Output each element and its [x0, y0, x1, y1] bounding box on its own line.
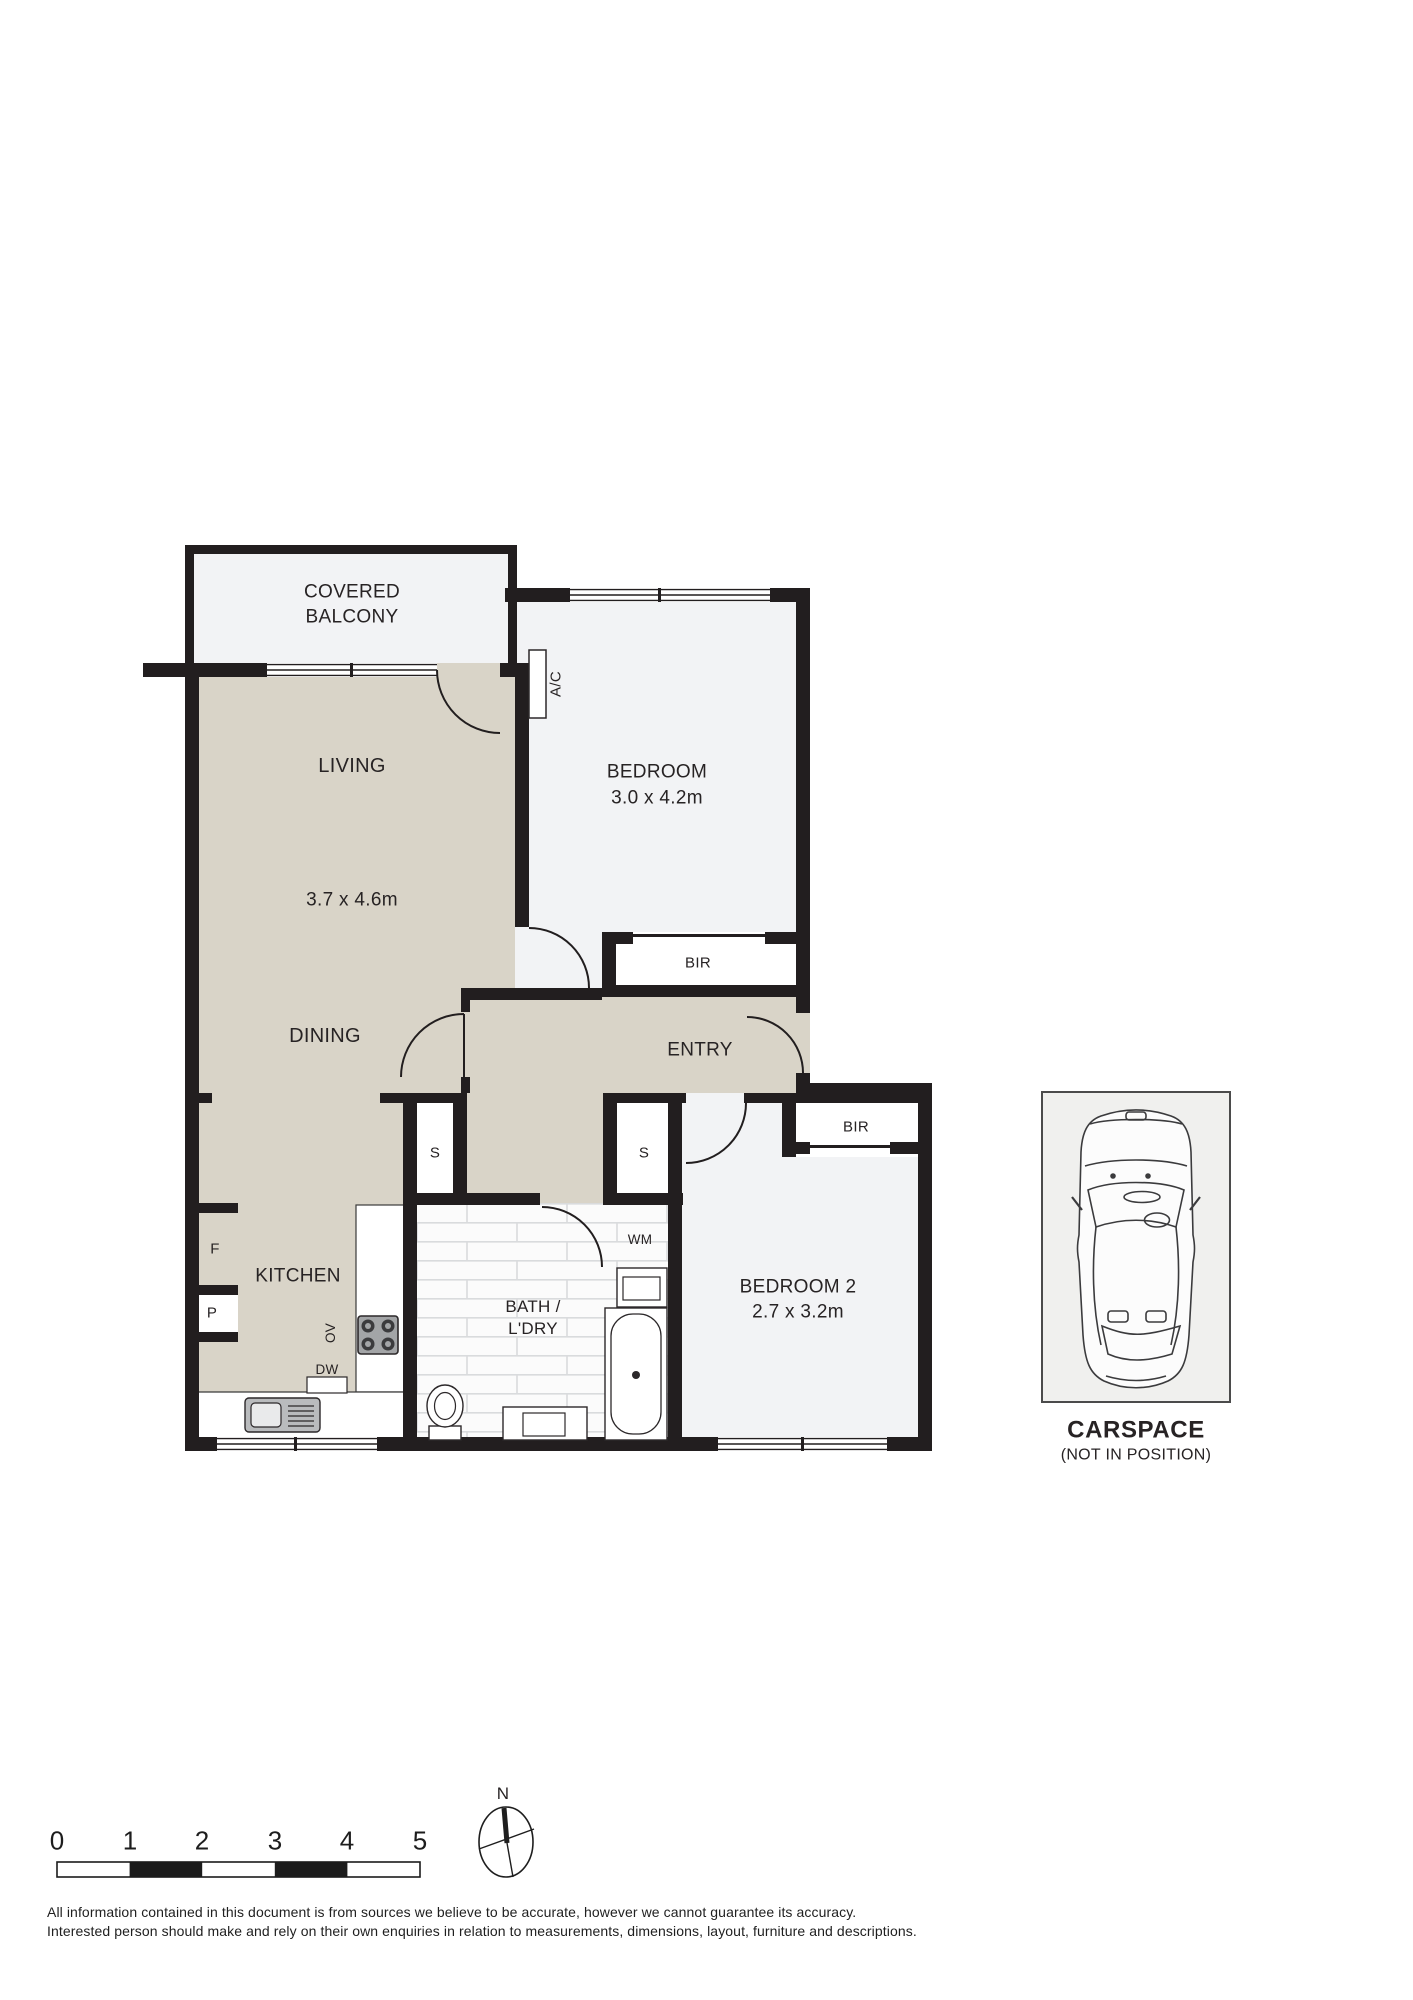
covered-balcony-line1: COVERED: [304, 580, 400, 605]
room-dimensions-living: 3.7 x 4.6m: [306, 889, 398, 914]
compass-icon: [479, 1807, 534, 1877]
dishwasher-label: DW: [315, 1361, 338, 1379]
scale-tick-0: 0: [50, 1826, 64, 1857]
compass-north-label: N: [497, 1783, 510, 1805]
room-dimensions-bedroom2: 2.7 x 3.2m: [752, 1301, 844, 1326]
sink-icon: [245, 1398, 320, 1432]
pantry-label: P: [207, 1303, 217, 1323]
dishwasher-icon: [307, 1377, 347, 1393]
scale-bar-graphic: [57, 1862, 420, 1877]
room-label-living: LIVING: [318, 753, 385, 779]
car-icon: [1072, 1110, 1200, 1388]
bathtub-icon: [605, 1308, 667, 1440]
floorplan-page: COVERED BALCONY LIVING 3.7 x 4.6m BEDROO…: [0, 0, 1413, 2000]
bedroom2-window: [718, 1437, 887, 1451]
fridge-label: F: [210, 1239, 219, 1259]
balcony-window: [267, 663, 437, 677]
scale-tick-4: 4: [340, 1826, 354, 1857]
washing-machine-label: WM: [628, 1231, 653, 1249]
vanity-icon: [503, 1407, 587, 1440]
carspace-title: CARSPACE: [1067, 1414, 1205, 1445]
ac-label: A/C: [546, 671, 566, 697]
scale-tick-2: 2: [195, 1826, 209, 1857]
bath-label-line2: L'DRY: [505, 1318, 560, 1340]
room-label-entry: ENTRY: [667, 1039, 733, 1064]
disclaimer-line1: All information contained in this docume…: [47, 1904, 856, 1920]
carspace-subtitle: (NOT IN POSITION): [1061, 1446, 1212, 1467]
scale-tick-5: 5: [413, 1826, 427, 1857]
kitchen-window: [217, 1437, 377, 1451]
ac-unit-icon: [529, 650, 546, 718]
covered-balcony-line2: BALCONY: [304, 605, 400, 630]
room-label-dining: DINING: [289, 1023, 361, 1049]
disclaimer-line2: Interested person should make and rely o…: [47, 1923, 917, 1939]
bedroom1-window: [570, 588, 770, 602]
scale-tick-1: 1: [123, 1826, 137, 1857]
toilet-icon: [427, 1385, 463, 1440]
room-dimensions-bedroom1: 3.0 x 4.2m: [611, 787, 703, 812]
washing-machine-icon: [617, 1268, 667, 1307]
room-label-bath-laundry: BATH / L'DRY: [505, 1296, 560, 1340]
cooktop-icon: [358, 1316, 398, 1354]
bath-label-line1: BATH /: [505, 1296, 560, 1318]
room-label-kitchen: KITCHEN: [255, 1265, 341, 1290]
bir-label-bedroom1: BIR: [685, 953, 711, 973]
room-label-bedroom2: BEDROOM 2: [740, 1276, 857, 1301]
scale-tick-3: 3: [268, 1826, 282, 1857]
room-label-covered-balcony: COVERED BALCONY: [304, 580, 400, 629]
bir-label-bedroom2: BIR: [843, 1117, 869, 1137]
storage-label-right: S: [639, 1143, 649, 1163]
storage-label-left: S: [430, 1143, 440, 1163]
oven-label: OV: [322, 1323, 340, 1343]
carspace-box: [1042, 1092, 1230, 1402]
floor-plan-canvas: [0, 0, 1413, 2000]
room-label-bedroom1: BEDROOM: [607, 761, 707, 786]
